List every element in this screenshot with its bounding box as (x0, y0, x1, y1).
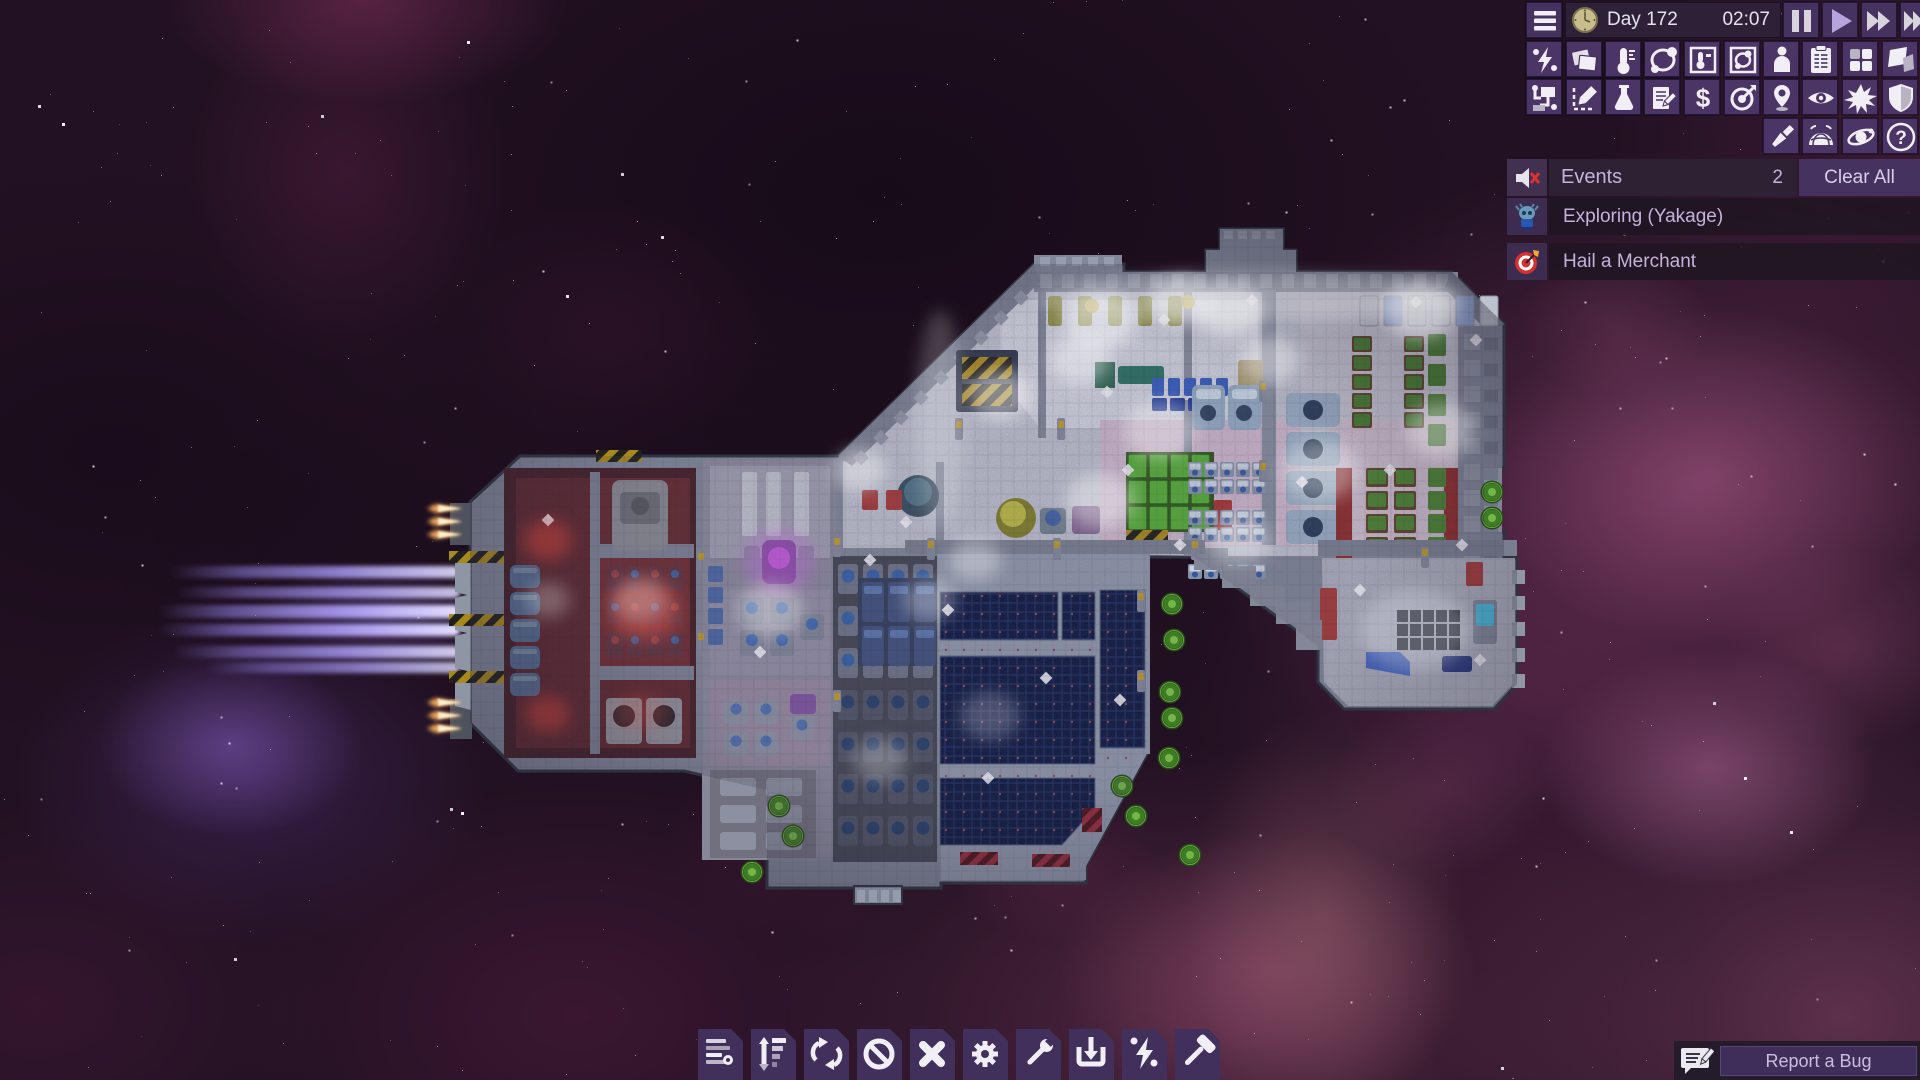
svg-text:$: $ (1696, 83, 1711, 113)
svg-text:?: ? (1895, 128, 1907, 149)
